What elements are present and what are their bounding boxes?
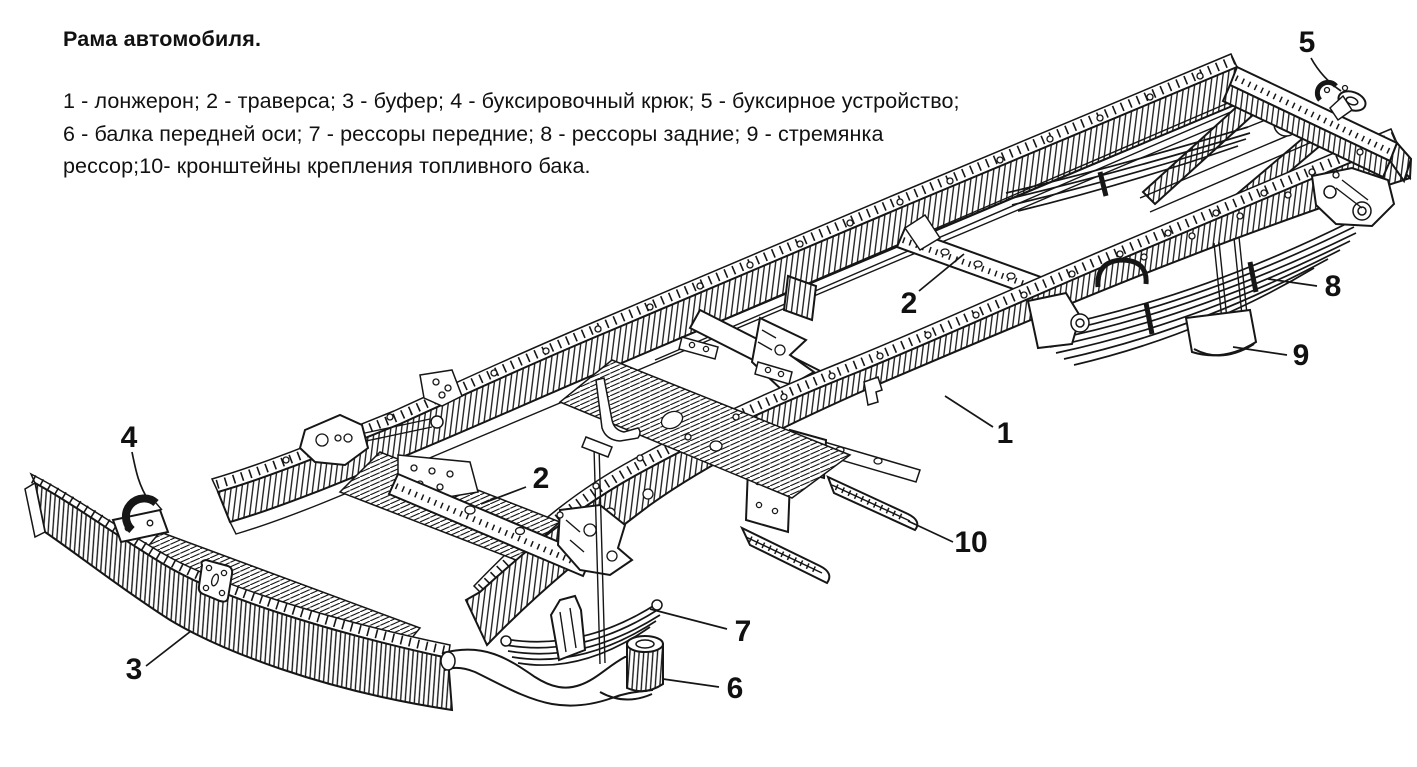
svg-text:6: 6 xyxy=(727,672,744,705)
svg-text:4: 4 xyxy=(121,421,138,454)
callout-3: 3 xyxy=(126,631,191,686)
svg-text:2: 2 xyxy=(533,462,550,495)
callout-1: 1 xyxy=(945,396,1013,450)
figure-vehicle-frame: Рама автомобиля. 1 - лонжерон; 2 - траве… xyxy=(0,0,1417,767)
svg-text:1: 1 xyxy=(997,417,1014,450)
callout-8: 8 xyxy=(1268,270,1341,303)
svg-text:9: 9 xyxy=(1293,339,1310,372)
svg-text:7: 7 xyxy=(735,615,752,648)
svg-text:3: 3 xyxy=(126,653,143,686)
svg-text:10: 10 xyxy=(954,526,987,559)
callout-6: 6 xyxy=(663,672,743,705)
callout-10: 10 xyxy=(908,521,988,559)
callout-5: 5 xyxy=(1299,26,1341,91)
svg-text:2: 2 xyxy=(901,287,918,320)
callout-4: 4 xyxy=(121,421,149,501)
svg-text:5: 5 xyxy=(1299,26,1316,59)
callout-7: 7 xyxy=(650,609,751,648)
spring-clamp xyxy=(1186,237,1256,355)
svg-text:8: 8 xyxy=(1325,270,1342,303)
frame-drawing: 5 8 9 2 1 4 2 xyxy=(0,0,1417,767)
